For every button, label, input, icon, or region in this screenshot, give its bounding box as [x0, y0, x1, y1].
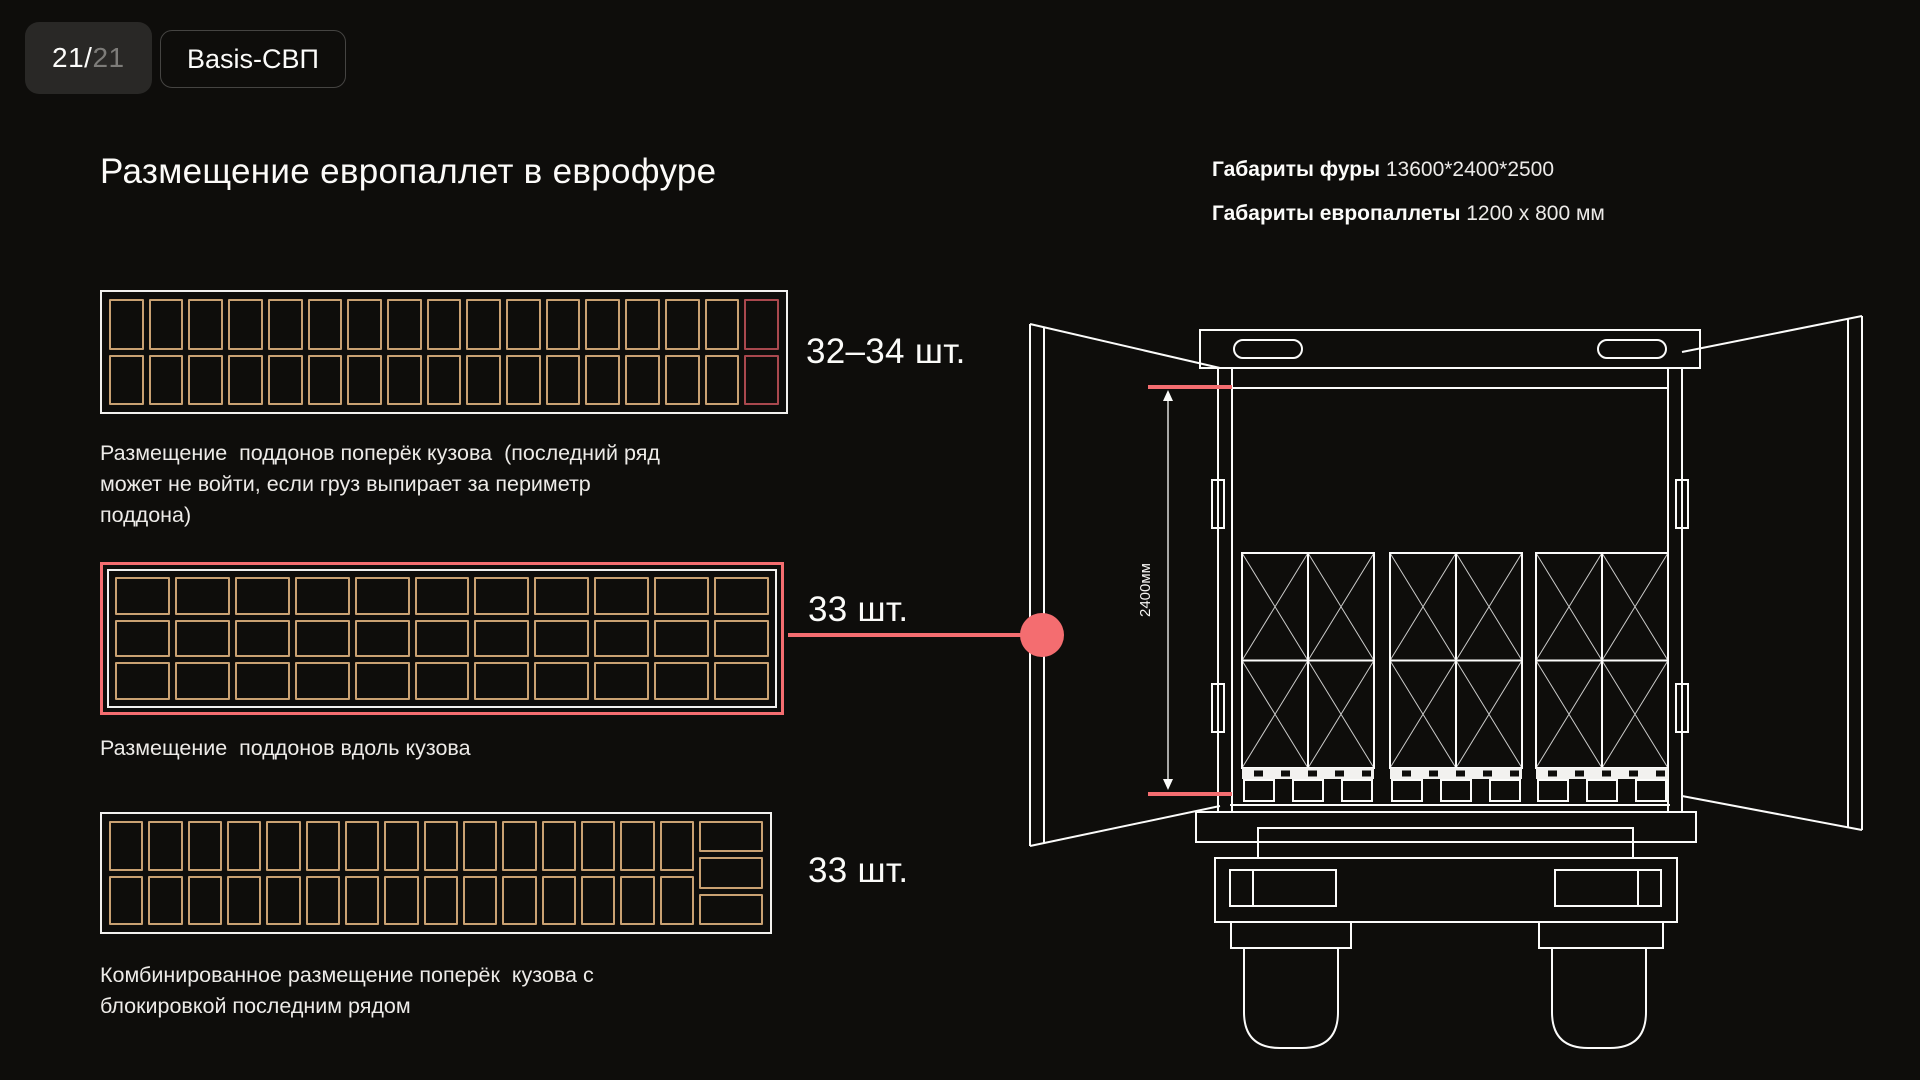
pallet-stack — [1390, 553, 1522, 801]
spec-pallet-value: 1200 x 800 мм — [1466, 202, 1605, 225]
pallet-cell — [620, 876, 654, 926]
connector-line — [788, 633, 1042, 637]
pallet-cell — [474, 620, 529, 658]
pallet-cell — [506, 299, 541, 350]
pallet-cell — [744, 355, 779, 406]
pallet-cell — [699, 857, 763, 888]
pallet-cell — [355, 662, 410, 700]
pallet-cell — [594, 620, 649, 658]
pallet-cell — [109, 299, 144, 350]
pallet-cell — [585, 355, 620, 406]
pallet-cell — [149, 355, 184, 406]
pallet-cell — [534, 620, 589, 658]
pallet-cell — [714, 577, 769, 615]
caption-transverse: Размещение поддонов поперёк кузова (посл… — [100, 438, 680, 531]
pallet-cell — [474, 662, 529, 700]
pallet-cell — [355, 620, 410, 658]
connector-dot — [1020, 613, 1064, 657]
pallet-cell — [355, 577, 410, 615]
pallet-cell — [235, 662, 290, 700]
dimension-label: 2400мм — [1137, 563, 1154, 617]
pallet-cell — [188, 355, 223, 406]
pallet-grid-lengthwise — [115, 577, 769, 700]
page-title: Размещение европаллет в еврофуре — [100, 152, 716, 192]
pallet-cell — [115, 662, 170, 700]
pallet-cell — [175, 577, 230, 615]
pallet-cell — [228, 299, 263, 350]
pallet-cell — [625, 355, 660, 406]
pallet-cell — [705, 299, 740, 350]
truck-undercarriage — [1196, 812, 1696, 1048]
pallet-cell — [699, 821, 763, 852]
truck-pallet-stacks — [1242, 553, 1668, 801]
pallet-cell — [665, 355, 700, 406]
truck-right-door — [1682, 316, 1862, 830]
pallet-grid-transverse — [109, 299, 779, 405]
pallet-cell — [115, 577, 170, 615]
diagram-lengthwise — [107, 569, 777, 708]
pallet-cell — [463, 876, 497, 926]
caption-combined: Комбинированное размещение поперёк кузов… — [100, 960, 615, 1022]
pallet-cell — [345, 876, 379, 926]
pallet-cell — [109, 355, 144, 406]
page-number-badge: 21/21 — [25, 22, 152, 94]
pallet-stack — [1242, 553, 1374, 801]
pallet-cell — [188, 299, 223, 350]
roof-slot-left — [1234, 340, 1302, 358]
dimension-specs: Габариты фуры 13600*2400*2500 Габариты е… — [1212, 148, 1605, 236]
pallet-cell — [534, 577, 589, 615]
truck-door-frame — [1212, 368, 1688, 812]
count-label-lengthwise: 33 шт. — [808, 590, 908, 630]
tail-light-left — [1230, 870, 1336, 906]
pallet-cell — [699, 894, 763, 925]
slide: 21/21 Basis-СВП Размещение европаллет в … — [0, 0, 1920, 1080]
pallet-cell — [474, 577, 529, 615]
pallet-cell — [295, 620, 350, 658]
wheel-right — [1552, 948, 1646, 1048]
pallet-cell — [714, 620, 769, 658]
pallet-cell — [660, 876, 694, 926]
pallet-cell — [109, 876, 143, 926]
pallet-cell — [188, 876, 222, 926]
spec-truck-label: Габариты фуры — [1212, 158, 1380, 181]
pallet-cell — [295, 662, 350, 700]
pallet-cell — [347, 299, 382, 350]
page-current: 21/ — [52, 42, 92, 74]
pallet-cell — [308, 355, 343, 406]
pallet-cell — [235, 620, 290, 658]
pallet-cell — [542, 821, 576, 871]
truck-roof-panel — [1200, 330, 1700, 368]
pallet-cell — [654, 577, 709, 615]
pallet-cell — [149, 299, 184, 350]
pallet-cell — [295, 577, 350, 615]
pallet-cell — [594, 577, 649, 615]
pallet-cell — [235, 577, 290, 615]
diagram-combined — [100, 812, 772, 934]
spec-truck: Габариты фуры 13600*2400*2500 — [1212, 148, 1605, 192]
truck-left-door — [1030, 324, 1220, 846]
pallet-cell — [654, 620, 709, 658]
pallet-cell — [415, 577, 470, 615]
spec-truck-value: 13600*2400*2500 — [1386, 158, 1554, 181]
pallet-cell — [665, 299, 700, 350]
pallet-cell — [581, 821, 615, 871]
pallet-cell — [506, 355, 541, 406]
caption-lengthwise: Размещение поддонов вдоль кузова — [100, 733, 720, 764]
pallet-cell — [714, 662, 769, 700]
pallet-cell — [546, 299, 581, 350]
pallet-cell — [585, 299, 620, 350]
pallet-cell — [148, 876, 182, 926]
pallet-cell — [266, 876, 300, 926]
pallet-cell — [306, 876, 340, 926]
pallet-cell — [546, 355, 581, 406]
pallet-cell — [625, 299, 660, 350]
pallet-cell — [424, 821, 458, 871]
pallet-cell — [268, 355, 303, 406]
truck-bumper — [1215, 858, 1677, 922]
pallet-cell — [466, 355, 501, 406]
pallet-cell — [424, 876, 458, 926]
pallet-cell — [384, 821, 418, 871]
pallet-cell — [581, 876, 615, 926]
spec-pallet: Габариты европаллеты 1200 x 800 мм — [1212, 192, 1605, 236]
pallet-cell — [347, 355, 382, 406]
pallet-cell — [660, 821, 694, 871]
roof-slot-right — [1598, 340, 1666, 358]
pallet-cell — [188, 821, 222, 871]
pallet-cell — [306, 821, 340, 871]
pallet-cell — [744, 299, 779, 350]
diagram-transverse — [100, 290, 788, 414]
diagram-lengthwise-highlight — [100, 562, 784, 715]
pallet-cell — [387, 355, 422, 406]
tail-light-right — [1555, 870, 1661, 906]
pallet-cell — [415, 662, 470, 700]
pallet-cell — [384, 876, 418, 926]
pallet-cell — [427, 299, 462, 350]
pallet-cell — [268, 299, 303, 350]
pallet-cell — [227, 821, 261, 871]
pallet-cell — [463, 821, 497, 871]
pallet-cell — [466, 299, 501, 350]
pallet-cell — [705, 355, 740, 406]
pallet-cell — [308, 299, 343, 350]
pallet-cell — [115, 620, 170, 658]
pallet-cell — [620, 821, 654, 871]
pallet-grid-combined-side — [699, 821, 763, 925]
count-label-combined: 33 шт. — [808, 851, 908, 891]
pallet-cell — [345, 821, 379, 871]
pallet-cell — [228, 355, 263, 406]
pallet-cell — [266, 821, 300, 871]
pallet-cell — [534, 662, 589, 700]
pallet-cell — [148, 821, 182, 871]
pallet-cell — [502, 821, 536, 871]
pallet-grid-combined-main — [109, 821, 694, 925]
pallet-cell — [109, 821, 143, 871]
pallet-cell — [654, 662, 709, 700]
pallet-cell — [542, 876, 576, 926]
spec-pallet-label: Габариты европаллеты — [1212, 202, 1460, 225]
pallet-cell — [387, 299, 422, 350]
truck-rear-drawing: 2400мм — [1000, 300, 1900, 1070]
pallet-cell — [502, 876, 536, 926]
pallet-cell — [175, 620, 230, 658]
pallet-cell — [175, 662, 230, 700]
pallet-cell — [427, 355, 462, 406]
pallet-cell — [415, 620, 470, 658]
page-total: 21 — [92, 42, 124, 74]
count-label-transverse: 32–34 шт. — [806, 332, 966, 372]
pallet-stack — [1536, 553, 1668, 801]
pallet-cell — [227, 876, 261, 926]
pallet-cell — [594, 662, 649, 700]
wheel-left — [1244, 948, 1338, 1048]
brand-badge: Basis-СВП — [160, 30, 346, 88]
